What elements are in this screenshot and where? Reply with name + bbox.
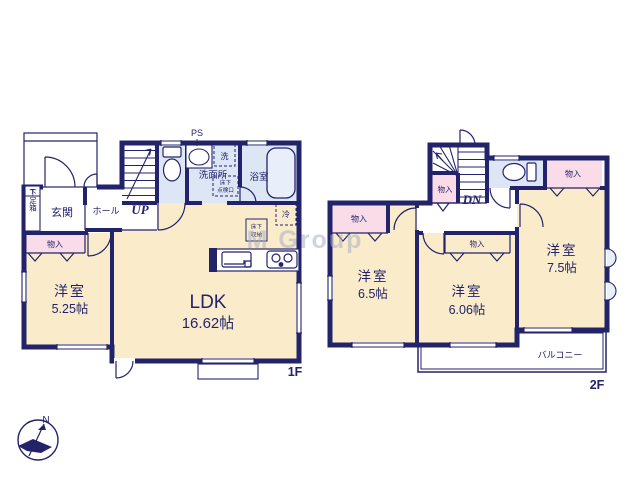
closet-label-606: 物入 (470, 239, 485, 249)
awning-window-2 (604, 282, 616, 300)
closet-label-topright: 物入 (565, 169, 581, 179)
ldk-back-door (114, 358, 135, 378)
floor-hatch-label1: 床下 (220, 179, 232, 187)
floorplan-page: T 下足箱 玄関 ホール UP PS 洗面所 洗 浴室 床下 点検口 冷 床下 … (0, 0, 640, 480)
entrance-porch (24, 133, 97, 187)
hall-label: ホール (92, 206, 119, 216)
bedroom-75-area: 7.5帖 (547, 260, 577, 275)
ldk-name: LDK (190, 292, 227, 313)
awning-window-1 (604, 249, 616, 267)
floor2-tag: 2F (590, 378, 605, 392)
toilet-icon-2f (503, 163, 536, 181)
staircase-1f (122, 149, 157, 199)
bedroom-65-name: 洋室 (358, 268, 389, 284)
toilet-icon-1f (163, 147, 181, 181)
bedroom-525-name: 洋室 (54, 283, 86, 299)
fridge-label: 冷 (282, 209, 290, 219)
stairs-up-label: UP (131, 202, 149, 217)
bedroom-525-area: 5.25帖 (52, 301, 89, 316)
toilet-door-2f (490, 188, 510, 208)
watermark-text: M Group (247, 226, 364, 254)
closet-label-1f: 物入 (47, 239, 63, 249)
compass-north-label: N (42, 415, 49, 426)
closet-label-stairs-2f: 物入 (438, 184, 453, 194)
washroom-label: 洗面所 (199, 169, 228, 181)
closet-label-65: 物入 (351, 214, 367, 224)
floor-hatch-label2: 点検口 (217, 186, 234, 194)
floor2-plan: 物入 物入 物入 物入 DN 洋室 6.5帖 洋室 6.06帖 洋室 7.5帖 … (327, 130, 616, 392)
pipe-space-label: PS (191, 128, 203, 138)
bathtub-icon (267, 148, 295, 198)
bedroom-75-name: 洋室 (547, 242, 578, 258)
bedroom-606-name: 洋室 (452, 283, 483, 299)
shoe-box-label: 下足箱 (28, 188, 37, 212)
floorplan-drawing: T 下足箱 玄関 ホール UP PS 洗面所 洗 浴室 床下 点検口 冷 床下 … (0, 0, 640, 480)
bedroom-75 (517, 188, 607, 330)
bedroom-606-area: 6.06帖 (449, 302, 486, 317)
bedroom-65-area: 6.5帖 (358, 286, 388, 301)
entrance-label: 玄関 (51, 205, 73, 219)
ldk-area: 16.62帖 (182, 315, 235, 332)
balcony-label: バルコニー (538, 350, 583, 360)
compass-icon: N (18, 415, 58, 460)
shoe-box: T 下足箱 (25, 186, 40, 231)
bathroom-label: 浴室 (249, 171, 268, 183)
stairs-dn-label: DN (462, 192, 482, 207)
floor1-tag: 1F (288, 365, 303, 379)
washer-label: 洗 (221, 151, 229, 161)
terrace-step (198, 364, 258, 379)
